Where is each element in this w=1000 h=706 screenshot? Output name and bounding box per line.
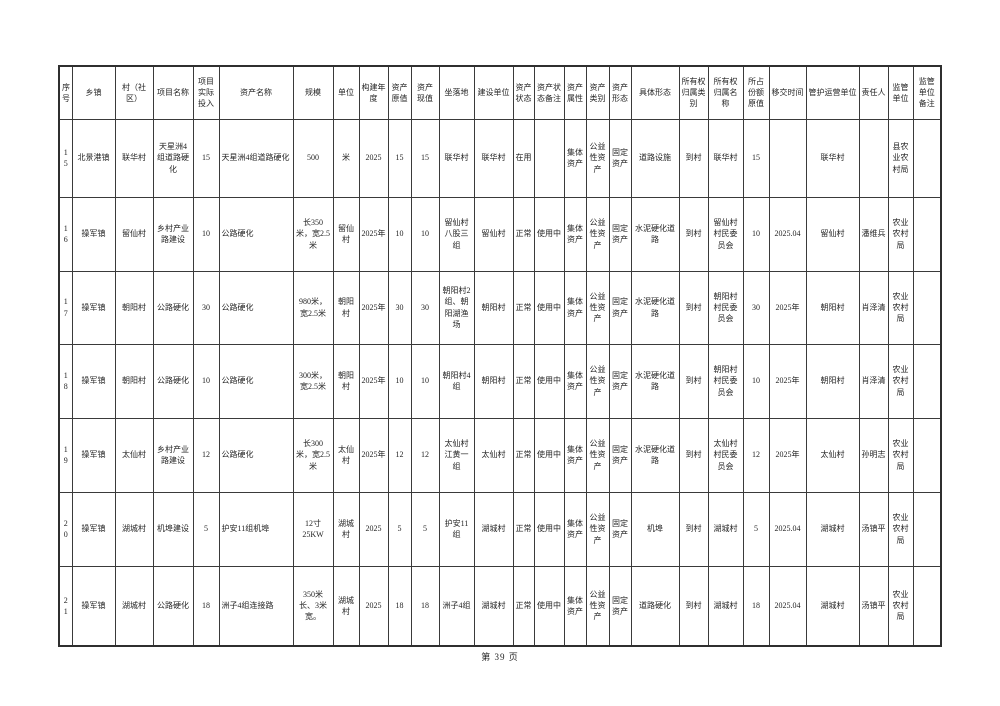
header-cell: 具体形态: [631, 66, 679, 119]
table-cell: 30: [388, 271, 411, 344]
table-row: 21操军镇湖城村公路硬化18洲子4组连接路350米长、3米宽。湖城村202518…: [59, 566, 941, 646]
table-cell: 2025: [359, 119, 388, 197]
table-cell: 5: [388, 492, 411, 566]
table-cell: 湖城村: [333, 492, 359, 566]
table-cell: [913, 271, 941, 344]
table-cell: 湖城村: [333, 566, 359, 646]
table-cell: 2025年: [359, 418, 388, 492]
table-cell: 980米，宽2.5米: [293, 271, 333, 344]
header-cell: 资产现值: [411, 66, 439, 119]
table-cell: 集体资产: [564, 492, 586, 566]
table-cell: 18: [411, 566, 439, 646]
table-cell: 留仙村: [333, 197, 359, 271]
table-row: 16操军镇留仙村乡村产业路建设10公路硬化长350米，宽2.5米留仙村2025年…: [59, 197, 941, 271]
table-cell: 公益性资产: [586, 344, 609, 418]
table-cell: 农业农村局: [888, 492, 913, 566]
header-cell: 所有权归属名称: [708, 66, 743, 119]
header-cell: 项目名称: [153, 66, 193, 119]
table-cell: 公路硬化: [219, 197, 293, 271]
table-cell: 肖泽清: [859, 271, 888, 344]
header-cell: 责任人: [859, 66, 888, 119]
table-cell: 联华村: [806, 119, 859, 197]
table-cell: 10: [743, 197, 769, 271]
table-cell: 留仙村: [806, 197, 859, 271]
table-cell: 21: [59, 566, 72, 646]
table-cell: 天星洲4组道路硬化: [219, 119, 293, 197]
table-cell: 18: [388, 566, 411, 646]
table-cell: 2025: [359, 492, 388, 566]
table-cell: 18: [59, 344, 72, 418]
table-cell: 固定资产: [609, 119, 631, 197]
table-cell: 使用中: [534, 344, 564, 418]
table-cell: 公益性资产: [586, 418, 609, 492]
page-number: 第 39 页: [0, 650, 1000, 663]
table-cell: 留仙村: [115, 197, 153, 271]
table-cell: 洲子4组: [439, 566, 474, 646]
table-cell: 湖城村: [474, 492, 513, 566]
table-cell: 使用中: [534, 197, 564, 271]
table-cell: 使用中: [534, 418, 564, 492]
table-cell: [913, 119, 941, 197]
header-cell: 建设单位: [474, 66, 513, 119]
table-cell: 农业农村局: [888, 566, 913, 646]
table-cell: 2025年: [359, 344, 388, 418]
table-cell: 固定资产: [609, 566, 631, 646]
table-row: 15北景港镇联华村天星洲4组道路硬化15天星洲4组道路硬化500米2025151…: [59, 119, 941, 197]
table-cell: 湖城村: [806, 566, 859, 646]
table-cell: 到村: [679, 418, 708, 492]
table-cell: 10: [193, 197, 219, 271]
table-cell: 湖城村: [806, 492, 859, 566]
header-cell: 管护运营单位: [806, 66, 859, 119]
table-cell: 公路硬化: [219, 271, 293, 344]
table-cell: 米: [333, 119, 359, 197]
table-cell: 固定资产: [609, 418, 631, 492]
table-cell: 朝阳村: [115, 271, 153, 344]
table-cell: 农业农村局: [888, 418, 913, 492]
table-cell: [534, 119, 564, 197]
table-cell: 潘维兵: [859, 197, 888, 271]
table-cell: 湖城村: [708, 566, 743, 646]
table-cell: [769, 119, 806, 197]
table-cell: 留仙村: [474, 197, 513, 271]
table-cell: 18: [193, 566, 219, 646]
table-cell: 汤镇平: [859, 566, 888, 646]
table-cell: 到村: [679, 197, 708, 271]
table-cell: 留仙村八股三组: [439, 197, 474, 271]
table-cell: 19: [59, 418, 72, 492]
table-cell: 正常: [513, 344, 534, 418]
header-cell: 资产形态: [609, 66, 631, 119]
table-cell: 12: [388, 418, 411, 492]
table-cell: 2025: [359, 566, 388, 646]
table-cell: 湖城村: [115, 492, 153, 566]
header-cell: 资产名称: [219, 66, 293, 119]
header-cell: 规模: [293, 66, 333, 119]
header-cell: 移交时间: [769, 66, 806, 119]
table-cell: 太仙村: [806, 418, 859, 492]
table-cell: [913, 344, 941, 418]
header-cell: 所占份额原值: [743, 66, 769, 119]
table-cell: [913, 492, 941, 566]
table-cell: [913, 566, 941, 646]
header-cell: 所有权归属类别: [679, 66, 708, 119]
table-cell: 2025.04: [769, 197, 806, 271]
table-cell: 18: [743, 566, 769, 646]
table-row: 17操军镇朝阳村公路硬化30公路硬化980米，宽2.5米朝阳村2025年3030…: [59, 271, 941, 344]
table-cell: 到村: [679, 492, 708, 566]
table-cell: 操军镇: [72, 271, 115, 344]
table-cell: 30: [743, 271, 769, 344]
table-cell: 正常: [513, 418, 534, 492]
table-cell: 10: [743, 344, 769, 418]
table-cell: 使用中: [534, 271, 564, 344]
table-cell: 水泥硬化道路: [631, 344, 679, 418]
table-cell: 12寸25KW: [293, 492, 333, 566]
table-cell: 固定资产: [609, 344, 631, 418]
table-cell: 16: [59, 197, 72, 271]
table-cell: 固定资产: [609, 492, 631, 566]
table-cell: 15: [193, 119, 219, 197]
table-cell: 集体资产: [564, 566, 586, 646]
table-cell: 机埠: [631, 492, 679, 566]
asset-table: 序号乡镇村（社区）项目名称项目实际投入资产名称规模单位构建年度资产原值资产现值坐…: [58, 65, 942, 647]
table-cell: 公路硬化: [219, 344, 293, 418]
table-cell: 500: [293, 119, 333, 197]
table-row: 20操军镇湖城村机埠建设5护安11组机埠12寸25KW湖城村202555护安11…: [59, 492, 941, 566]
table-cell: 到村: [679, 344, 708, 418]
table-cell: 洲子4组连接路: [219, 566, 293, 646]
table-cell: 集体资产: [564, 418, 586, 492]
header-cell: 监管单位备注: [913, 66, 941, 119]
table-cell: 朝阳村: [806, 344, 859, 418]
table-cell: 2025.04: [769, 566, 806, 646]
header-cell: 项目实际投入: [193, 66, 219, 119]
table-cell: 10: [411, 197, 439, 271]
table-cell: 公路硬化: [153, 344, 193, 418]
table-cell: 12: [743, 418, 769, 492]
table-cell: 太仙村: [474, 418, 513, 492]
table-cell: 朝阳村: [474, 271, 513, 344]
table-cell: 太仙村村民委员会: [708, 418, 743, 492]
table-cell: 300米，宽2.5米: [293, 344, 333, 418]
table-cell: 长300米，宽2.5米: [293, 418, 333, 492]
table-cell: 17: [59, 271, 72, 344]
table-cell: 乡村产业路建设: [153, 197, 193, 271]
table-cell: 使用中: [534, 566, 564, 646]
table-cell: 固定资产: [609, 271, 631, 344]
table-cell: 5: [743, 492, 769, 566]
header-cell: 单位: [333, 66, 359, 119]
table-cell: 朝阳村: [115, 344, 153, 418]
table-cell: [859, 119, 888, 197]
table-cell: 20: [59, 492, 72, 566]
table-cell: 正常: [513, 566, 534, 646]
table-cell: 正常: [513, 271, 534, 344]
table-body: 15北景港镇联华村天星洲4组道路硬化15天星洲4组道路硬化500米2025151…: [59, 119, 941, 646]
header-cell: 坐落地: [439, 66, 474, 119]
table-cell: 集体资产: [564, 344, 586, 418]
table-cell: 湖城村: [474, 566, 513, 646]
table-cell: 孙明志: [859, 418, 888, 492]
table-cell: 留仙村村民委员会: [708, 197, 743, 271]
header-cell: 乡镇: [72, 66, 115, 119]
table-cell: 公路硬化: [153, 271, 193, 344]
table-row: 18操军镇朝阳村公路硬化10公路硬化300米，宽2.5米朝阳村2025年1010…: [59, 344, 941, 418]
table-cell: 汤镇平: [859, 492, 888, 566]
table-cell: 正常: [513, 197, 534, 271]
table-cell: 15: [388, 119, 411, 197]
table-cell: 公益性资产: [586, 119, 609, 197]
table-cell: 联华村: [708, 119, 743, 197]
table-cell: 朝阳村村民委员会: [708, 344, 743, 418]
table-cell: 10: [193, 344, 219, 418]
header-cell: 资产状态备注: [534, 66, 564, 119]
table-cell: 朝阳村: [474, 344, 513, 418]
table-cell: 10: [388, 197, 411, 271]
table-cell: 太仙村: [333, 418, 359, 492]
table-cell: 公益性资产: [586, 197, 609, 271]
table-row: 19操军镇太仙村乡村产业路建设12公路硬化长300米，宽2.5米太仙村2025年…: [59, 418, 941, 492]
table-cell: 正常: [513, 492, 534, 566]
table-cell: 天星洲4组道路硬化: [153, 119, 193, 197]
table-cell: 北景港镇: [72, 119, 115, 197]
header-cell: 构建年度: [359, 66, 388, 119]
table-cell: 2025年: [359, 271, 388, 344]
table-cell: 水泥硬化道路: [631, 418, 679, 492]
table-cell: 乡村产业路建设: [153, 418, 193, 492]
header-row: 序号乡镇村（社区）项目名称项目实际投入资产名称规模单位构建年度资产原值资产现值坐…: [59, 66, 941, 119]
table-cell: 护安11组: [439, 492, 474, 566]
table-cell: 30: [193, 271, 219, 344]
table-cell: 机埠建设: [153, 492, 193, 566]
table-cell: 集体资产: [564, 119, 586, 197]
table-cell: 在用: [513, 119, 534, 197]
table-cell: 操军镇: [72, 197, 115, 271]
table-cell: 朝阳村: [806, 271, 859, 344]
table-cell: 朝阳村: [333, 344, 359, 418]
table-cell: 操军镇: [72, 418, 115, 492]
table-cell: 县农业农村局: [888, 119, 913, 197]
table-cell: 长350米，宽2.5米: [293, 197, 333, 271]
table-cell: 水泥硬化道路: [631, 197, 679, 271]
table-cell: 10: [411, 344, 439, 418]
table-cell: 固定资产: [609, 197, 631, 271]
table-cell: 道路设施: [631, 119, 679, 197]
table-cell: 到村: [679, 119, 708, 197]
table-cell: 2025年: [359, 197, 388, 271]
table-cell: 2025.04: [769, 492, 806, 566]
table-cell: 使用中: [534, 492, 564, 566]
table-cell: 集体资产: [564, 197, 586, 271]
header-cell: 资产状态: [513, 66, 534, 119]
table-cell: 湖城村: [708, 492, 743, 566]
table-cell: 道路硬化: [631, 566, 679, 646]
document-page: 序号乡镇村（社区）项目名称项目实际投入资产名称规模单位构建年度资产原值资产现值坐…: [0, 0, 1000, 706]
table-cell: 集体资产: [564, 271, 586, 344]
table-header: 序号乡镇村（社区）项目名称项目实际投入资产名称规模单位构建年度资产原值资产现值坐…: [59, 66, 941, 119]
table-cell: 15: [411, 119, 439, 197]
header-cell: 序号: [59, 66, 72, 119]
table-cell: 15: [59, 119, 72, 197]
table-cell: 水泥硬化道路: [631, 271, 679, 344]
table-cell: 联华村: [474, 119, 513, 197]
table-cell: [913, 197, 941, 271]
table-cell: 350米长、3米宽。: [293, 566, 333, 646]
table-cell: 肖泽清: [859, 344, 888, 418]
header-cell: 资产原值: [388, 66, 411, 119]
table-cell: 12: [193, 418, 219, 492]
header-cell: 村（社区）: [115, 66, 153, 119]
table-cell: 朝阳村2组、朝阳湖渔场: [439, 271, 474, 344]
table-cell: 公路硬化: [219, 418, 293, 492]
table-cell: 公益性资产: [586, 271, 609, 344]
table-cell: 公益性资产: [586, 492, 609, 566]
table-cell: 联华村: [115, 119, 153, 197]
table-cell: 太仙村: [115, 418, 153, 492]
table-cell: 到村: [679, 271, 708, 344]
table-cell: 太仙村江黄一组: [439, 418, 474, 492]
table-cell: 12: [411, 418, 439, 492]
table-cell: 15: [743, 119, 769, 197]
table-cell: 到村: [679, 566, 708, 646]
table-cell: 操军镇: [72, 344, 115, 418]
table-cell: 农业农村局: [888, 197, 913, 271]
table-cell: 护安11组机埠: [219, 492, 293, 566]
header-cell: 资产类别: [586, 66, 609, 119]
table-cell: 农业农村局: [888, 271, 913, 344]
table-cell: 2025年: [769, 344, 806, 418]
table-cell: 公路硬化: [153, 566, 193, 646]
table-cell: [913, 418, 941, 492]
table-cell: 朝阳村: [333, 271, 359, 344]
table-cell: 2025年: [769, 271, 806, 344]
table-cell: 公益性资产: [586, 566, 609, 646]
table-cell: 朝阳村4组: [439, 344, 474, 418]
table-cell: 操军镇: [72, 566, 115, 646]
table-cell: 2025年: [769, 418, 806, 492]
table-cell: 农业农村局: [888, 344, 913, 418]
table-cell: 朝阳村村民委员会: [708, 271, 743, 344]
table-cell: 联华村: [439, 119, 474, 197]
table-cell: 10: [388, 344, 411, 418]
table-cell: 湖城村: [115, 566, 153, 646]
table-cell: 操军镇: [72, 492, 115, 566]
header-cell: 资产属性: [564, 66, 586, 119]
table-cell: 5: [411, 492, 439, 566]
header-cell: 监管单位: [888, 66, 913, 119]
table-cell: 5: [193, 492, 219, 566]
table-cell: 30: [411, 271, 439, 344]
